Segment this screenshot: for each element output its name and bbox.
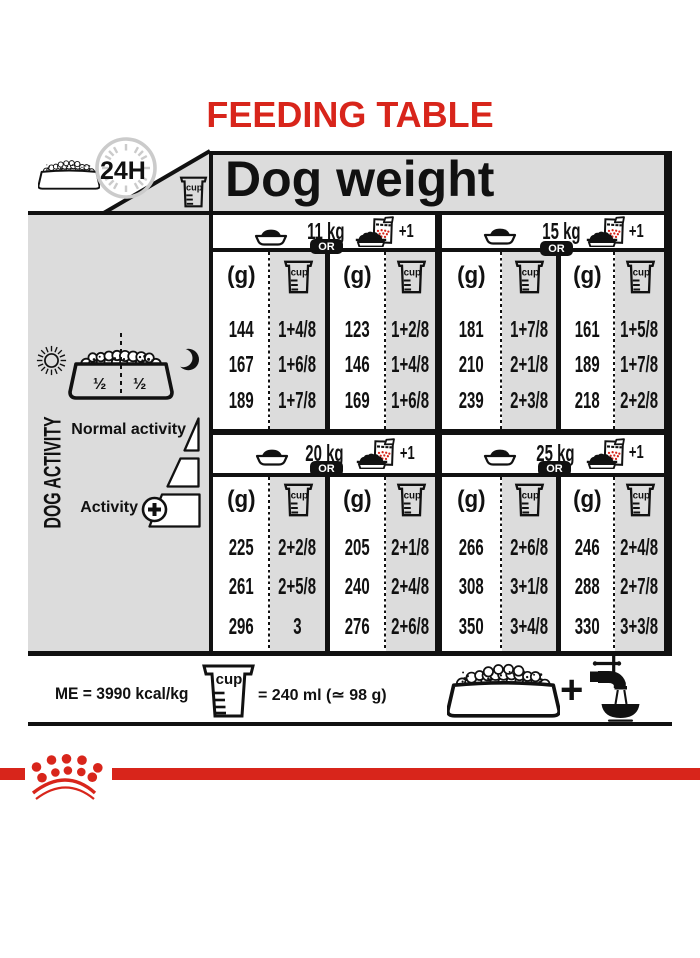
svg-text:cup: cup [216, 671, 243, 688]
